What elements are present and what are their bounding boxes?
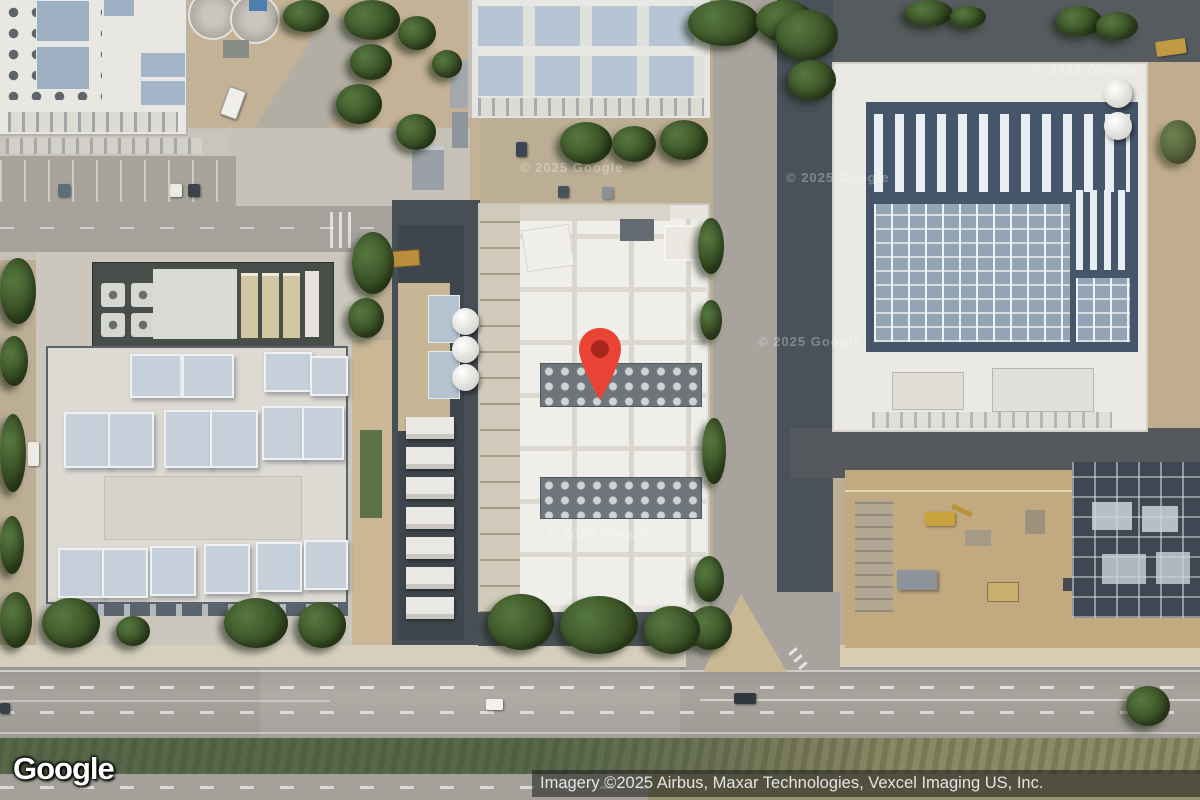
roof-panel-white	[153, 269, 237, 339]
concrete-pad	[855, 500, 893, 612]
building-center	[478, 203, 710, 615]
steel-frame-structure	[1072, 462, 1200, 618]
roof-unit-tan	[241, 273, 258, 338]
hvac-fan-row	[540, 477, 702, 519]
skylight-unit	[130, 354, 182, 398]
road-vertical	[713, 0, 777, 600]
crosswalk	[330, 212, 356, 248]
lane-line-left	[0, 700, 330, 702]
tree	[348, 298, 384, 338]
roof-unit-tan	[262, 273, 279, 338]
lane-line-right	[700, 699, 1200, 701]
dock-row	[478, 98, 704, 116]
water-tank	[452, 364, 479, 391]
roof-flat-mid	[104, 476, 302, 540]
roof-annex	[892, 372, 964, 410]
frame-panel	[1156, 552, 1190, 584]
car	[516, 142, 527, 157]
building-strip	[398, 225, 464, 640]
map-attribution: Imagery ©2025 Airbus, Maxar Technologies…	[532, 770, 1200, 797]
frame-panel	[1142, 506, 1178, 532]
tree	[788, 60, 836, 100]
roof-panel	[140, 80, 186, 106]
solar-panel	[249, 0, 267, 11]
skylight-unit	[264, 352, 312, 392]
roof-fan	[101, 313, 125, 337]
tree	[396, 114, 436, 150]
debris	[1025, 510, 1045, 534]
skylight-unit	[164, 410, 212, 468]
equipment-bay	[406, 567, 454, 589]
tree	[0, 414, 26, 492]
dock-row	[872, 412, 1112, 428]
material-crates	[987, 582, 1019, 602]
map-watermark: © 2025 Google	[1034, 62, 1138, 77]
road-glare	[260, 667, 680, 738]
car-on-road	[0, 703, 10, 714]
tree	[1096, 12, 1138, 40]
map-marker[interactable]	[576, 326, 624, 402]
car-on-road	[486, 699, 503, 710]
dock-row	[8, 112, 178, 132]
roof-panel	[140, 52, 186, 78]
roof-fan	[101, 283, 125, 307]
car	[188, 184, 200, 197]
tree	[116, 616, 150, 646]
tree	[1126, 686, 1170, 726]
map-watermark: © 2025 Google	[520, 160, 624, 175]
water-tank	[452, 336, 479, 363]
tree	[432, 50, 462, 78]
map-watermark: © 2025 Google	[548, 526, 652, 541]
tree	[702, 418, 726, 484]
road-edge-line-bottom	[0, 732, 1200, 734]
excavator	[925, 512, 955, 526]
skylight-unit	[310, 356, 348, 396]
parking-lines	[0, 160, 236, 202]
tree	[398, 16, 436, 50]
skylight-unit	[302, 406, 344, 460]
skylight-unit	[262, 406, 304, 460]
tree	[350, 44, 392, 80]
skylight-unit	[304, 540, 348, 590]
skylight-unit	[102, 548, 148, 598]
roof-unit-tan	[283, 273, 300, 338]
car	[558, 186, 569, 198]
roof-panel	[104, 0, 134, 16]
marker-body	[579, 328, 621, 400]
frame-panel	[1102, 554, 1146, 584]
equipment-bay	[406, 597, 454, 619]
water-tank	[452, 308, 479, 335]
cooling-panel-grid	[478, 0, 704, 96]
map-watermark: © 2025 Google	[758, 334, 862, 349]
equipment-bay	[406, 417, 454, 439]
road-edge-line-top	[0, 670, 1200, 672]
tree	[905, 0, 953, 26]
tree	[644, 606, 700, 654]
equipment-bay	[406, 447, 454, 469]
skylight-unit	[108, 412, 154, 468]
storage-tank	[1104, 80, 1132, 108]
tree	[344, 0, 400, 40]
roof-inner-dark	[866, 102, 1138, 352]
marker-dot	[591, 340, 609, 358]
car	[58, 184, 70, 197]
roof-panel	[36, 46, 90, 90]
building-top-center	[468, 0, 710, 118]
van-white	[28, 442, 39, 466]
building-left-big	[46, 346, 348, 604]
roof-annex	[521, 224, 574, 272]
loading-docks	[6, 138, 202, 154]
tree	[0, 258, 36, 324]
skylight-unit	[182, 354, 234, 398]
tree	[352, 232, 394, 294]
lane-dashes-1	[0, 686, 1200, 689]
tree	[283, 0, 329, 32]
roof-framing-grid	[1076, 278, 1130, 342]
roof-left-strip	[480, 205, 520, 613]
skylight-unit	[256, 542, 302, 592]
tree	[42, 598, 100, 648]
roof-panel-rows	[520, 219, 706, 605]
satellite-map[interactable]: © 2025 Google © 2025 Google © 2025 Googl…	[0, 0, 1200, 800]
skylight-unit	[150, 546, 196, 596]
roof-fan	[131, 313, 155, 337]
tree	[694, 556, 724, 602]
cooling-strips-right	[1076, 190, 1130, 270]
car	[170, 184, 182, 197]
roof-annex	[992, 368, 1094, 412]
map-watermark: © 2025 Google	[786, 170, 890, 185]
equipment-bay	[406, 507, 454, 529]
tree	[0, 516, 24, 574]
tree	[776, 10, 838, 60]
tree	[0, 336, 28, 386]
cooling-strips-top	[874, 114, 1130, 192]
tree	[0, 592, 32, 648]
equipment-bay	[406, 537, 454, 559]
tree	[698, 218, 724, 274]
equipment-pad	[223, 40, 249, 58]
tree	[336, 84, 382, 124]
skylight-unit	[204, 544, 250, 594]
equipment-box	[412, 146, 444, 190]
annex-box	[452, 112, 468, 148]
building-left-mid	[92, 262, 334, 348]
planter-strip	[360, 430, 382, 518]
truck-yellow	[389, 249, 420, 268]
debris	[965, 530, 991, 546]
frame-panel	[1092, 502, 1132, 530]
skylight-unit	[64, 412, 110, 468]
shrub	[1160, 120, 1196, 164]
roof-strip-white	[305, 271, 319, 337]
equipment-bay	[406, 477, 454, 499]
car	[602, 187, 613, 199]
car-on-road	[734, 693, 756, 704]
roof-fan	[131, 283, 155, 307]
tree	[688, 0, 760, 46]
storage-tank	[1104, 112, 1132, 140]
tree	[560, 122, 612, 164]
tree	[560, 596, 638, 654]
asphalt-topright	[833, 0, 1200, 64]
tree	[298, 602, 346, 648]
skylight-unit	[58, 548, 104, 598]
tree	[660, 120, 708, 160]
tree	[612, 126, 656, 162]
tree	[950, 6, 986, 28]
roof-panel	[36, 0, 90, 42]
building-right	[832, 62, 1148, 432]
roof-framing-grid	[874, 204, 1070, 342]
skylight-unit	[210, 410, 258, 468]
lane-dashes-2	[0, 711, 1200, 714]
sidewalk-right	[780, 645, 1200, 665]
shed-gray	[897, 570, 937, 590]
ground-dirt-right	[1148, 62, 1200, 432]
grass-texture	[0, 738, 1200, 774]
google-logo[interactable]: Google	[13, 751, 114, 787]
building-top-left	[0, 0, 188, 136]
tree	[1056, 6, 1102, 36]
tree	[700, 300, 722, 340]
tree	[224, 598, 288, 648]
attribution-text: Imagery ©2025 Airbus, Maxar Technologies…	[540, 774, 1043, 792]
tree	[488, 594, 554, 650]
roof-tower	[620, 219, 654, 241]
